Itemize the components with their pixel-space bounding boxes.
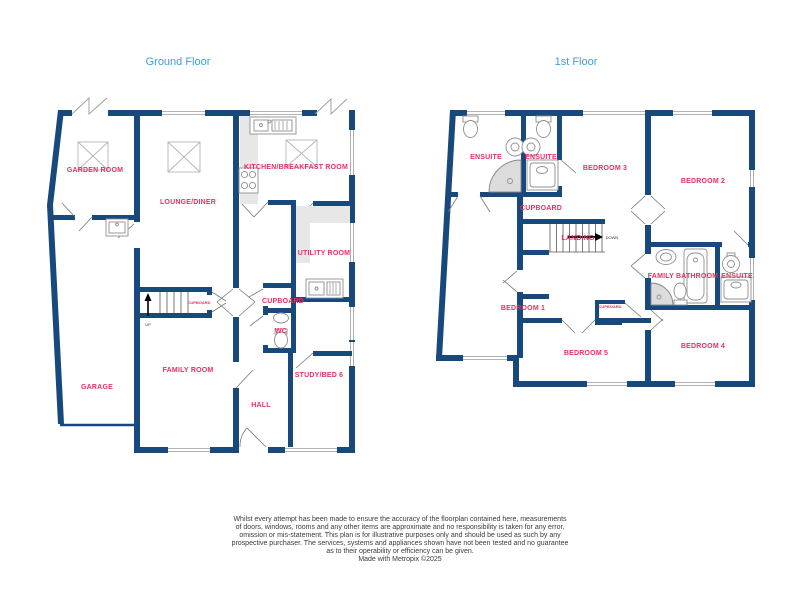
room-label-study: STUDY/BED 6 [295,372,344,379]
room-label-utility: UTILITY ROOM [298,250,350,257]
hob-icon [239,168,258,193]
room-label-hall: HALL [251,402,271,409]
room-label-garage: GARAGE [81,384,113,391]
disclaimer-line: as to their operability or efficiency ca… [0,548,800,556]
room-label-landing: LANDING [561,235,595,242]
room-label-ensuite-2: ENSUITE [525,154,557,161]
room-label-lounge-diner: LOUNGE/DINER [160,199,216,206]
room-label-kitchen: KITCHEN/BREAKFAST ROOM [244,164,348,171]
room-label-cupboard: CUPBOARD [262,298,304,305]
stairs-down-label: DOWN [606,235,619,240]
room-label-bedroom-3: BEDROOM 3 [583,165,627,172]
ground-floor-plan: GARDEN ROOM LOUNGE/DINER KITCHEN/BREAKFA… [47,98,355,453]
room-label-bedroom-2: BEDROOM 2 [681,178,725,185]
disclaimer-line: of doors, windows, rooms and any other i… [0,524,800,532]
utility-sink-icon [306,279,343,298]
floorplan-drawing: GARDEN ROOM LOUNGE/DINER KITCHEN/BREAKFA… [0,0,800,600]
first-floor-plan: ENSUITE ENSUITE BEDROOM 3 BEDROOM 2 CUPB… [436,110,755,387]
room-label-bedroom-1: BEDROOM 1 [501,305,545,312]
garden-appliance-icon [106,219,128,236]
made-with-credit: Made with Metropix ©2025 [0,556,800,564]
floorplan-page: Ground Floor 1st Floor [0,0,800,600]
room-label-bedroom-4: BEDROOM 4 [681,343,725,350]
room-label-family-bathroom: FAMILY BATHROOM [648,273,719,280]
room-label-cupboard-first: CUPBOARD [520,205,562,212]
disclaimer-line: Whilst every attempt has been made to en… [0,516,800,524]
room-label-ensuite-1: ENSUITE [470,154,502,161]
kitchen-sink-icon [250,117,296,134]
room-label-ensuite-4: ENSUITE [721,273,753,280]
disclaimer: Whilst every attempt has been made to en… [0,516,800,564]
stairs-up-label: UP [145,322,151,327]
ensuite2-fixtures [522,116,558,190]
room-label-wc: WC [275,328,287,335]
ground-stairs [145,292,189,316]
ground-outer-walls [47,98,355,453]
room-label-family-room: FAMILY ROOM [163,367,214,374]
room-label-cupboard-stairs: CUPBOARD [187,300,210,305]
room-label-garden-room: GARDEN ROOM [67,167,123,174]
room-label-bedroom-5: BEDROOM 5 [564,350,608,357]
disclaimer-line: prospective purchaser. The services, sys… [0,540,800,548]
ground-doors [62,202,313,447]
room-label-cupboard-small: CUPBOARD [598,304,621,309]
disclaimer-line: omission or mis-statement. This plan is … [0,532,800,540]
